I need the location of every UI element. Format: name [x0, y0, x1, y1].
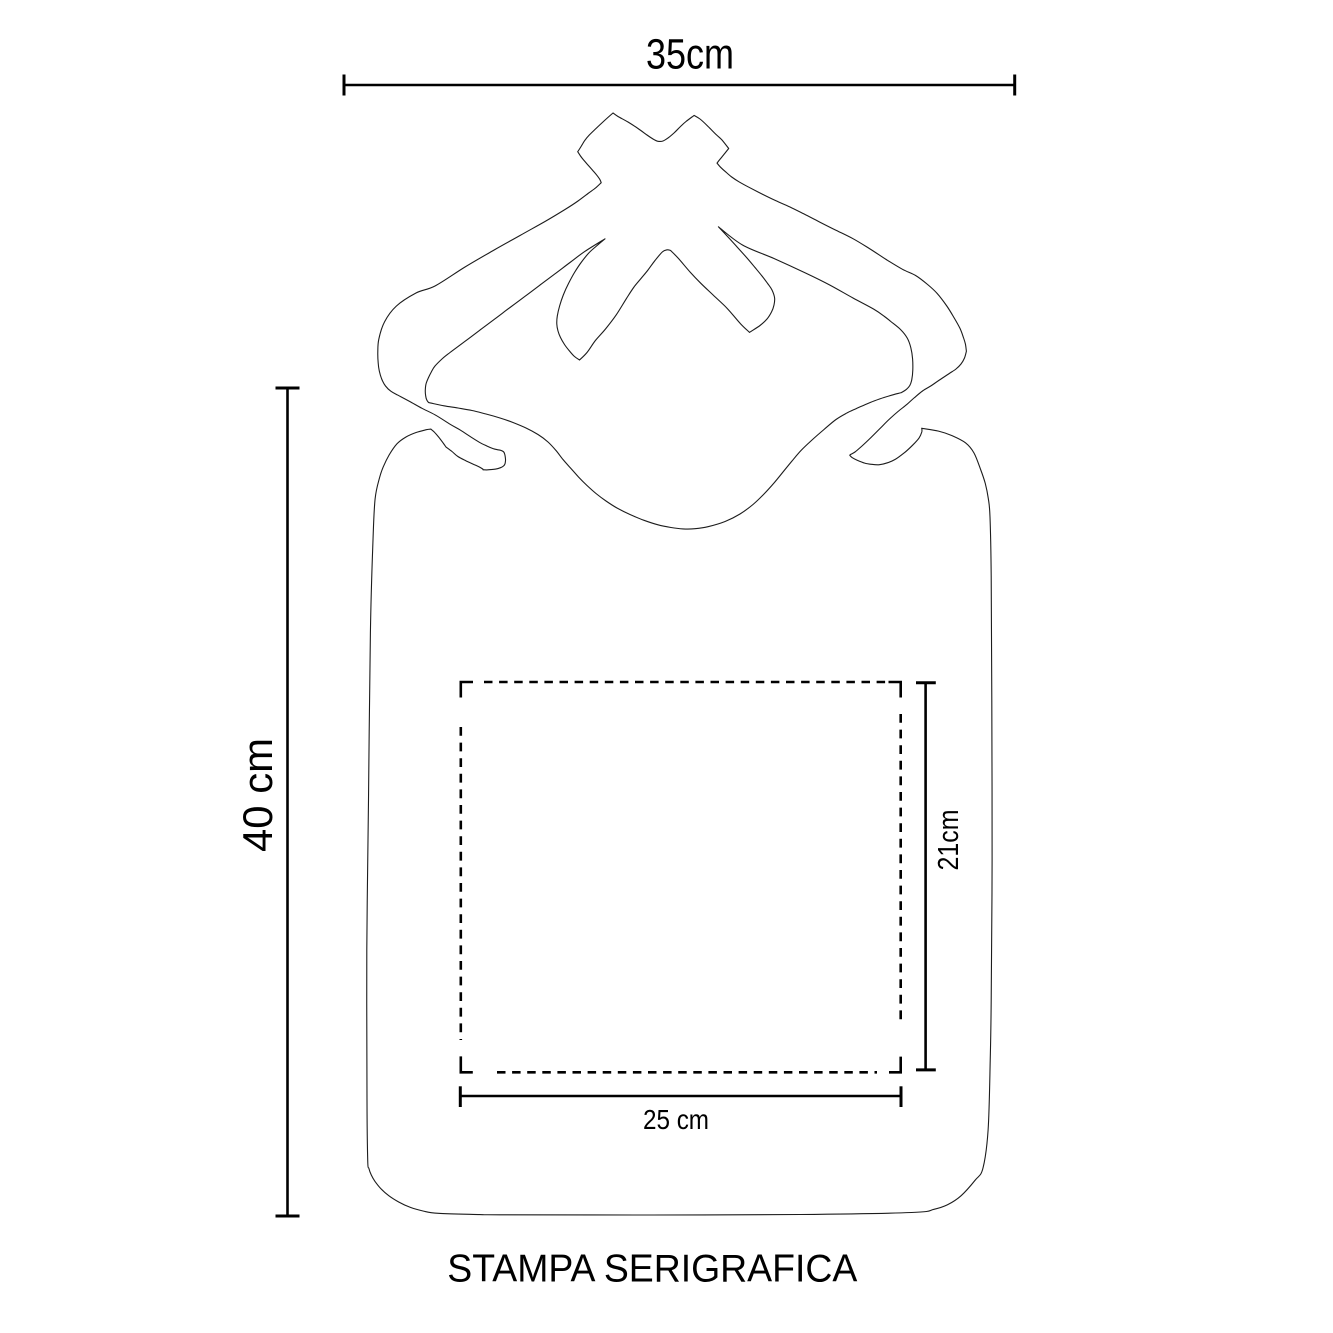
svg-text:21cm: 21cm	[933, 810, 965, 871]
svg-text:25 cm: 25 cm	[643, 1104, 709, 1135]
svg-text:40 cm: 40 cm	[234, 738, 281, 852]
svg-text:STAMPA SERIGRAFICA: STAMPA SERIGRAFICA	[447, 1247, 857, 1290]
svg-text:35cm: 35cm	[646, 31, 734, 79]
